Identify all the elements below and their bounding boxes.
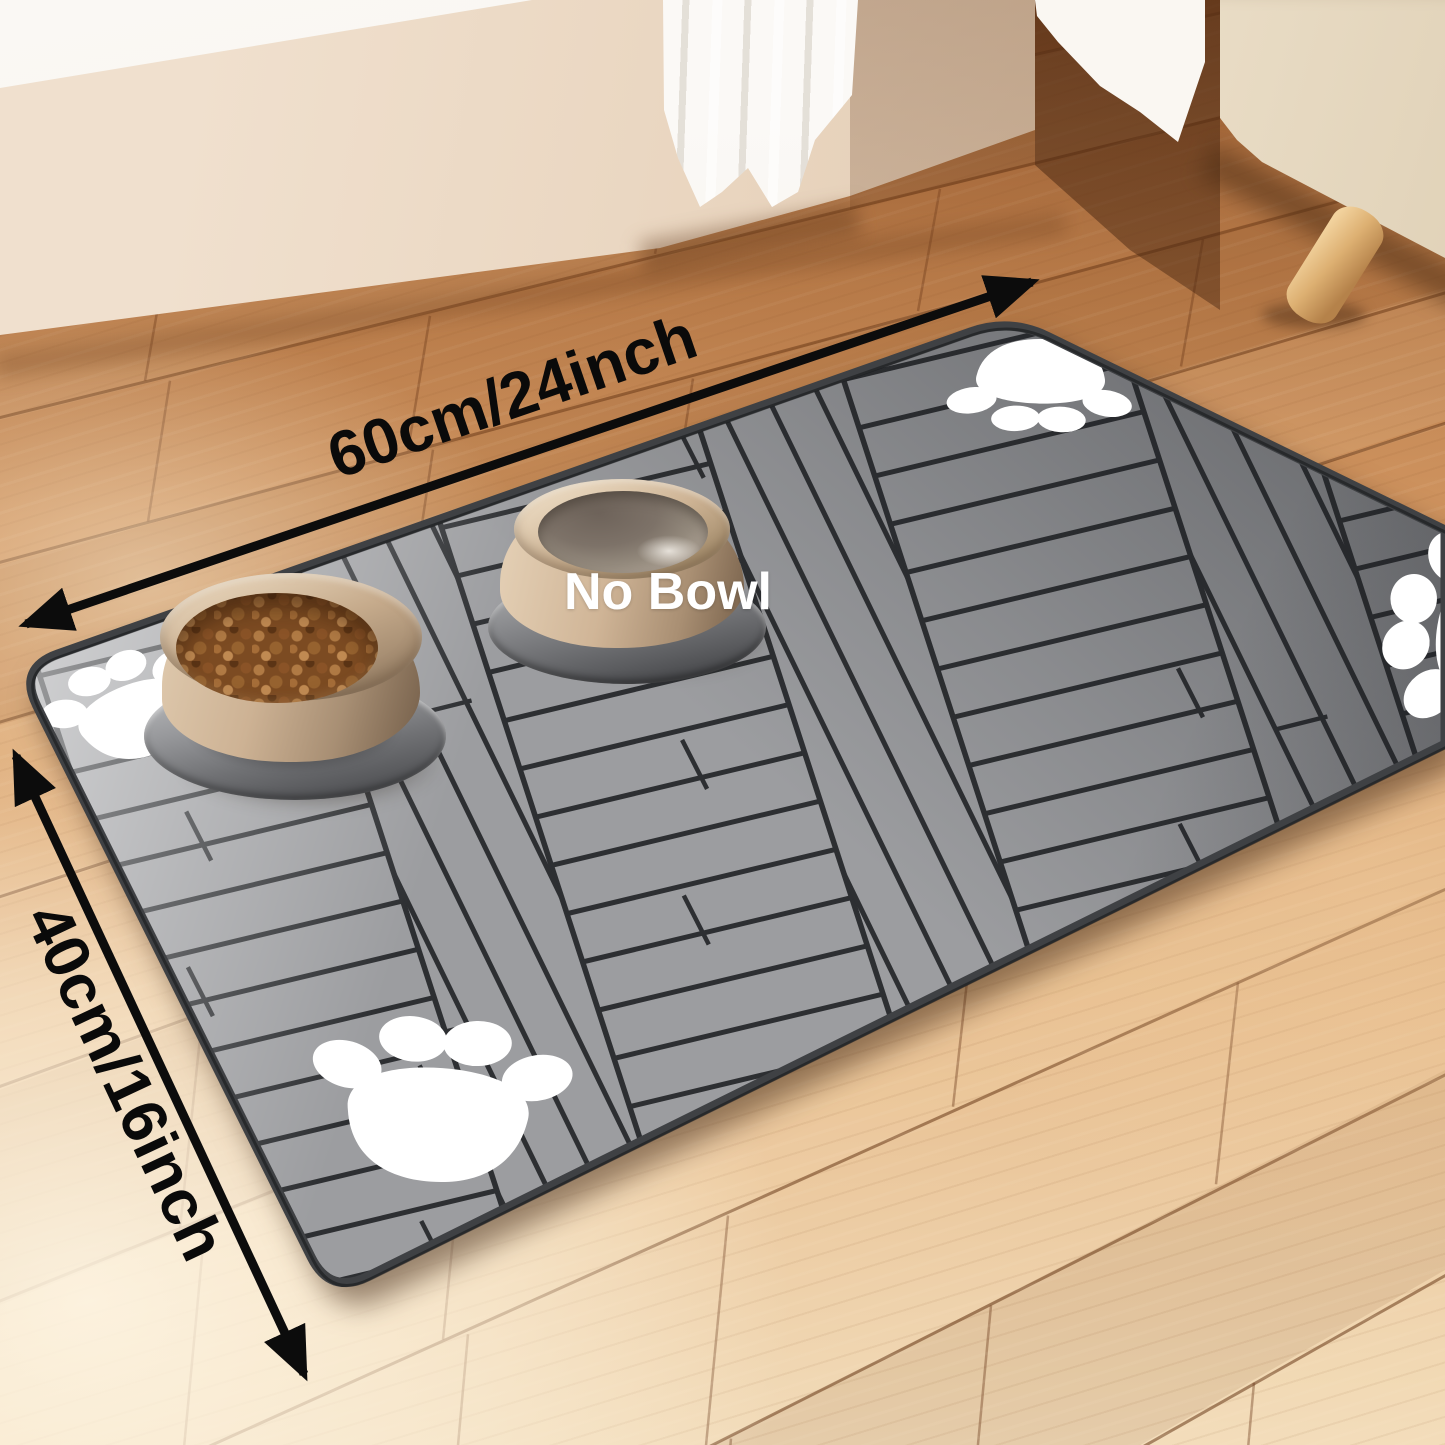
- product-photo-pet-feeding-mat: 60cm/24inch 40cm/16inch No Bowl: [0, 0, 1445, 1445]
- no-bowl-label: No Bowl: [564, 566, 772, 618]
- width-arrow: [26, 282, 1032, 624]
- height-arrow: [16, 756, 304, 1374]
